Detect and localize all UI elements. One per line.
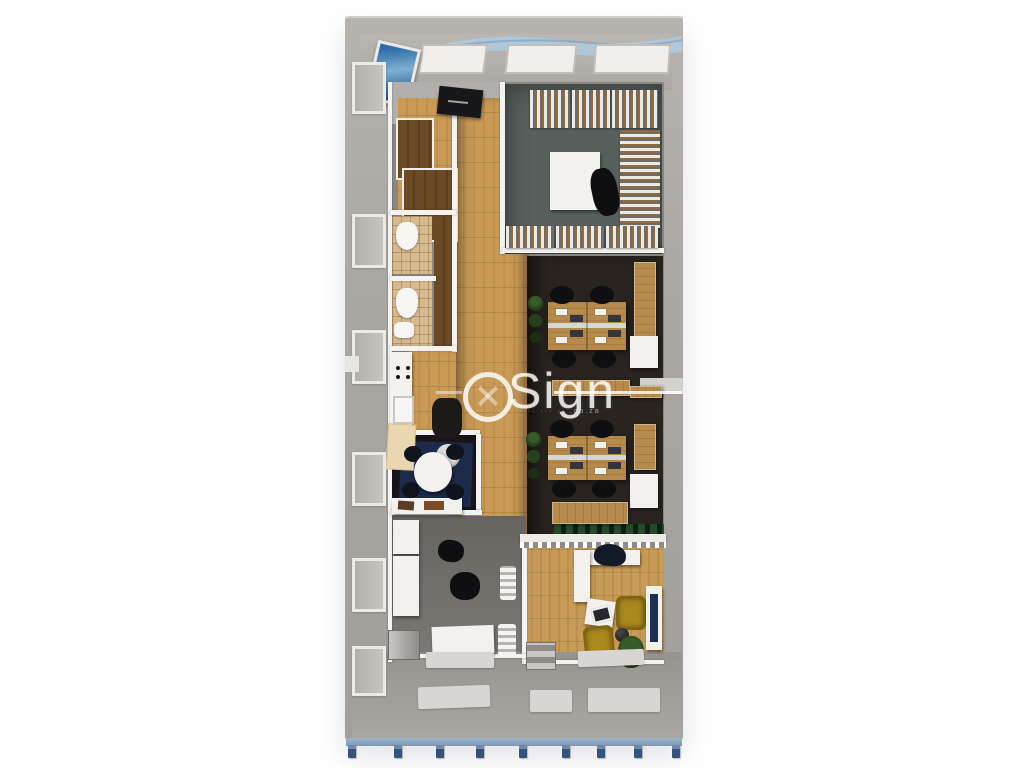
wall-credenza — [634, 424, 656, 470]
shelving-rack — [572, 90, 610, 128]
monitor — [570, 315, 583, 322]
white-cabinet — [393, 520, 419, 554]
slatted-column — [498, 624, 516, 656]
glass-partition — [520, 534, 666, 542]
kitchen-appliance — [432, 398, 462, 438]
west-wall-tab — [345, 356, 359, 372]
partition-dash-strip — [520, 542, 666, 548]
monitor — [608, 462, 621, 469]
floor-mat — [426, 652, 494, 668]
shelving-rack — [506, 226, 554, 248]
desk-gap — [586, 436, 588, 480]
floor-mat — [578, 649, 645, 667]
nook-east-wall — [476, 434, 481, 514]
keyboard — [556, 337, 567, 343]
keyboard — [595, 309, 606, 315]
footing-pier — [519, 745, 527, 758]
office-chair — [550, 286, 574, 304]
monitor — [570, 462, 583, 469]
footing-pier — [476, 745, 484, 758]
toilet — [396, 288, 418, 318]
west-window-frame — [352, 452, 386, 506]
watermark-subtitle: ·· ··· ····· ···· ··· ·· .co.za — [464, 408, 601, 415]
skylight-panel — [507, 46, 576, 72]
step-stool — [526, 642, 556, 670]
storage-west-wall — [500, 82, 505, 254]
footing-pier — [562, 745, 570, 758]
floor-mat — [530, 690, 572, 712]
plant — [528, 296, 543, 311]
slatted-column — [500, 566, 516, 600]
shelving-rack — [620, 130, 660, 228]
desk-gap — [586, 302, 588, 350]
corridor-west-wall — [452, 108, 457, 352]
office-chair — [450, 572, 480, 600]
nook-chair — [446, 444, 464, 460]
floor-mat — [588, 688, 660, 712]
monitor — [608, 330, 621, 337]
l-desk-leg — [574, 550, 590, 602]
footing-pier — [672, 745, 680, 758]
white-cabinet — [630, 336, 658, 368]
console-item — [424, 501, 444, 510]
watermark-line-left — [436, 391, 462, 394]
closet-strip — [434, 216, 454, 346]
office-desk — [432, 625, 495, 655]
office-chair — [550, 420, 574, 438]
floor-mat — [418, 685, 491, 709]
monitor — [570, 447, 583, 454]
wc-divider-wall — [390, 276, 436, 281]
monitor — [608, 315, 621, 322]
wc1-north-wall — [390, 210, 456, 215]
tall-cabinet — [393, 556, 419, 616]
keyboard — [556, 442, 567, 448]
keyboard — [595, 337, 606, 343]
shelving-rack — [606, 226, 658, 248]
skylight-panel — [420, 46, 486, 72]
wall-screen-display — [650, 594, 658, 642]
west-window-frame — [352, 558, 386, 612]
shelving-rack — [556, 226, 604, 248]
footing-pier — [436, 745, 444, 758]
keyboard — [556, 468, 567, 474]
west-window-frame — [352, 646, 386, 696]
storage-south-wall — [502, 248, 664, 253]
toilet — [396, 222, 418, 250]
white-cabinet — [630, 474, 658, 508]
round-table — [414, 452, 452, 492]
office-chair — [552, 480, 576, 498]
skylight-panel — [595, 46, 669, 72]
monitor — [608, 447, 621, 454]
console-item — [398, 500, 415, 510]
keyboard — [556, 309, 567, 315]
west-window-frame — [352, 214, 386, 268]
keyboard — [595, 442, 606, 448]
footing-pier — [394, 745, 402, 758]
floorplan-render: Sign ·· ··· ····· ···· ··· ·· .co.za — [0, 0, 1024, 768]
shelving-rack — [612, 90, 658, 128]
west-window-frame — [352, 62, 386, 114]
footing-pier — [348, 745, 356, 758]
monitor — [570, 330, 583, 337]
low-sideboard — [552, 502, 628, 524]
office-chair — [590, 420, 614, 438]
basin — [394, 322, 414, 338]
partition-planter — [554, 524, 664, 534]
office-chair — [590, 286, 614, 304]
desk-cluster-lower — [548, 436, 626, 480]
nook-chair — [446, 484, 464, 500]
plant — [526, 432, 541, 447]
mini-fridge — [388, 630, 420, 660]
desk-cluster-upper — [548, 302, 626, 350]
office-chair — [592, 480, 616, 498]
kitchen-north-wall — [390, 346, 456, 351]
shelving-rack — [530, 90, 570, 128]
keyboard — [595, 468, 606, 474]
hob-burners — [396, 366, 400, 370]
mustard-armchair — [616, 596, 646, 630]
footing-pier — [634, 745, 642, 758]
kitchen-sink — [393, 396, 414, 424]
footing-pier — [597, 745, 605, 758]
